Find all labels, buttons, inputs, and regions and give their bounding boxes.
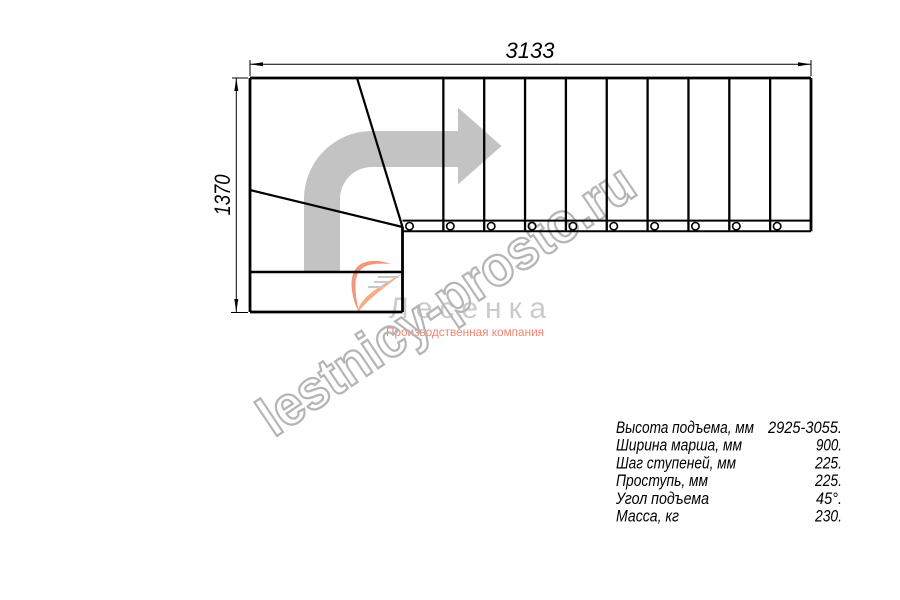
- svg-text:45°.: 45°.: [816, 489, 842, 508]
- svg-text:230.: 230.: [814, 507, 842, 526]
- svg-text:Масса, кг: Масса, кг: [616, 507, 679, 526]
- svg-text:900.: 900.: [816, 436, 842, 455]
- svg-text:Высота подъема, мм: Высота подъема, мм: [616, 418, 754, 437]
- svg-text:Ширина марша, мм: Ширина марша, мм: [616, 436, 742, 455]
- svg-text:1370: 1370: [210, 174, 235, 216]
- svg-text:225.: 225.: [814, 453, 842, 472]
- svg-text:Проступь, мм: Проступь, мм: [616, 471, 708, 490]
- svg-text:3133: 3133: [506, 38, 556, 63]
- svg-text:Шаг ступеней, мм: Шаг ступеней, мм: [616, 453, 736, 472]
- svg-text:Угол подъема: Угол подъема: [615, 489, 709, 508]
- svg-text:2925-3055.: 2925-3055.: [767, 418, 842, 437]
- svg-text:225.: 225.: [814, 471, 842, 490]
